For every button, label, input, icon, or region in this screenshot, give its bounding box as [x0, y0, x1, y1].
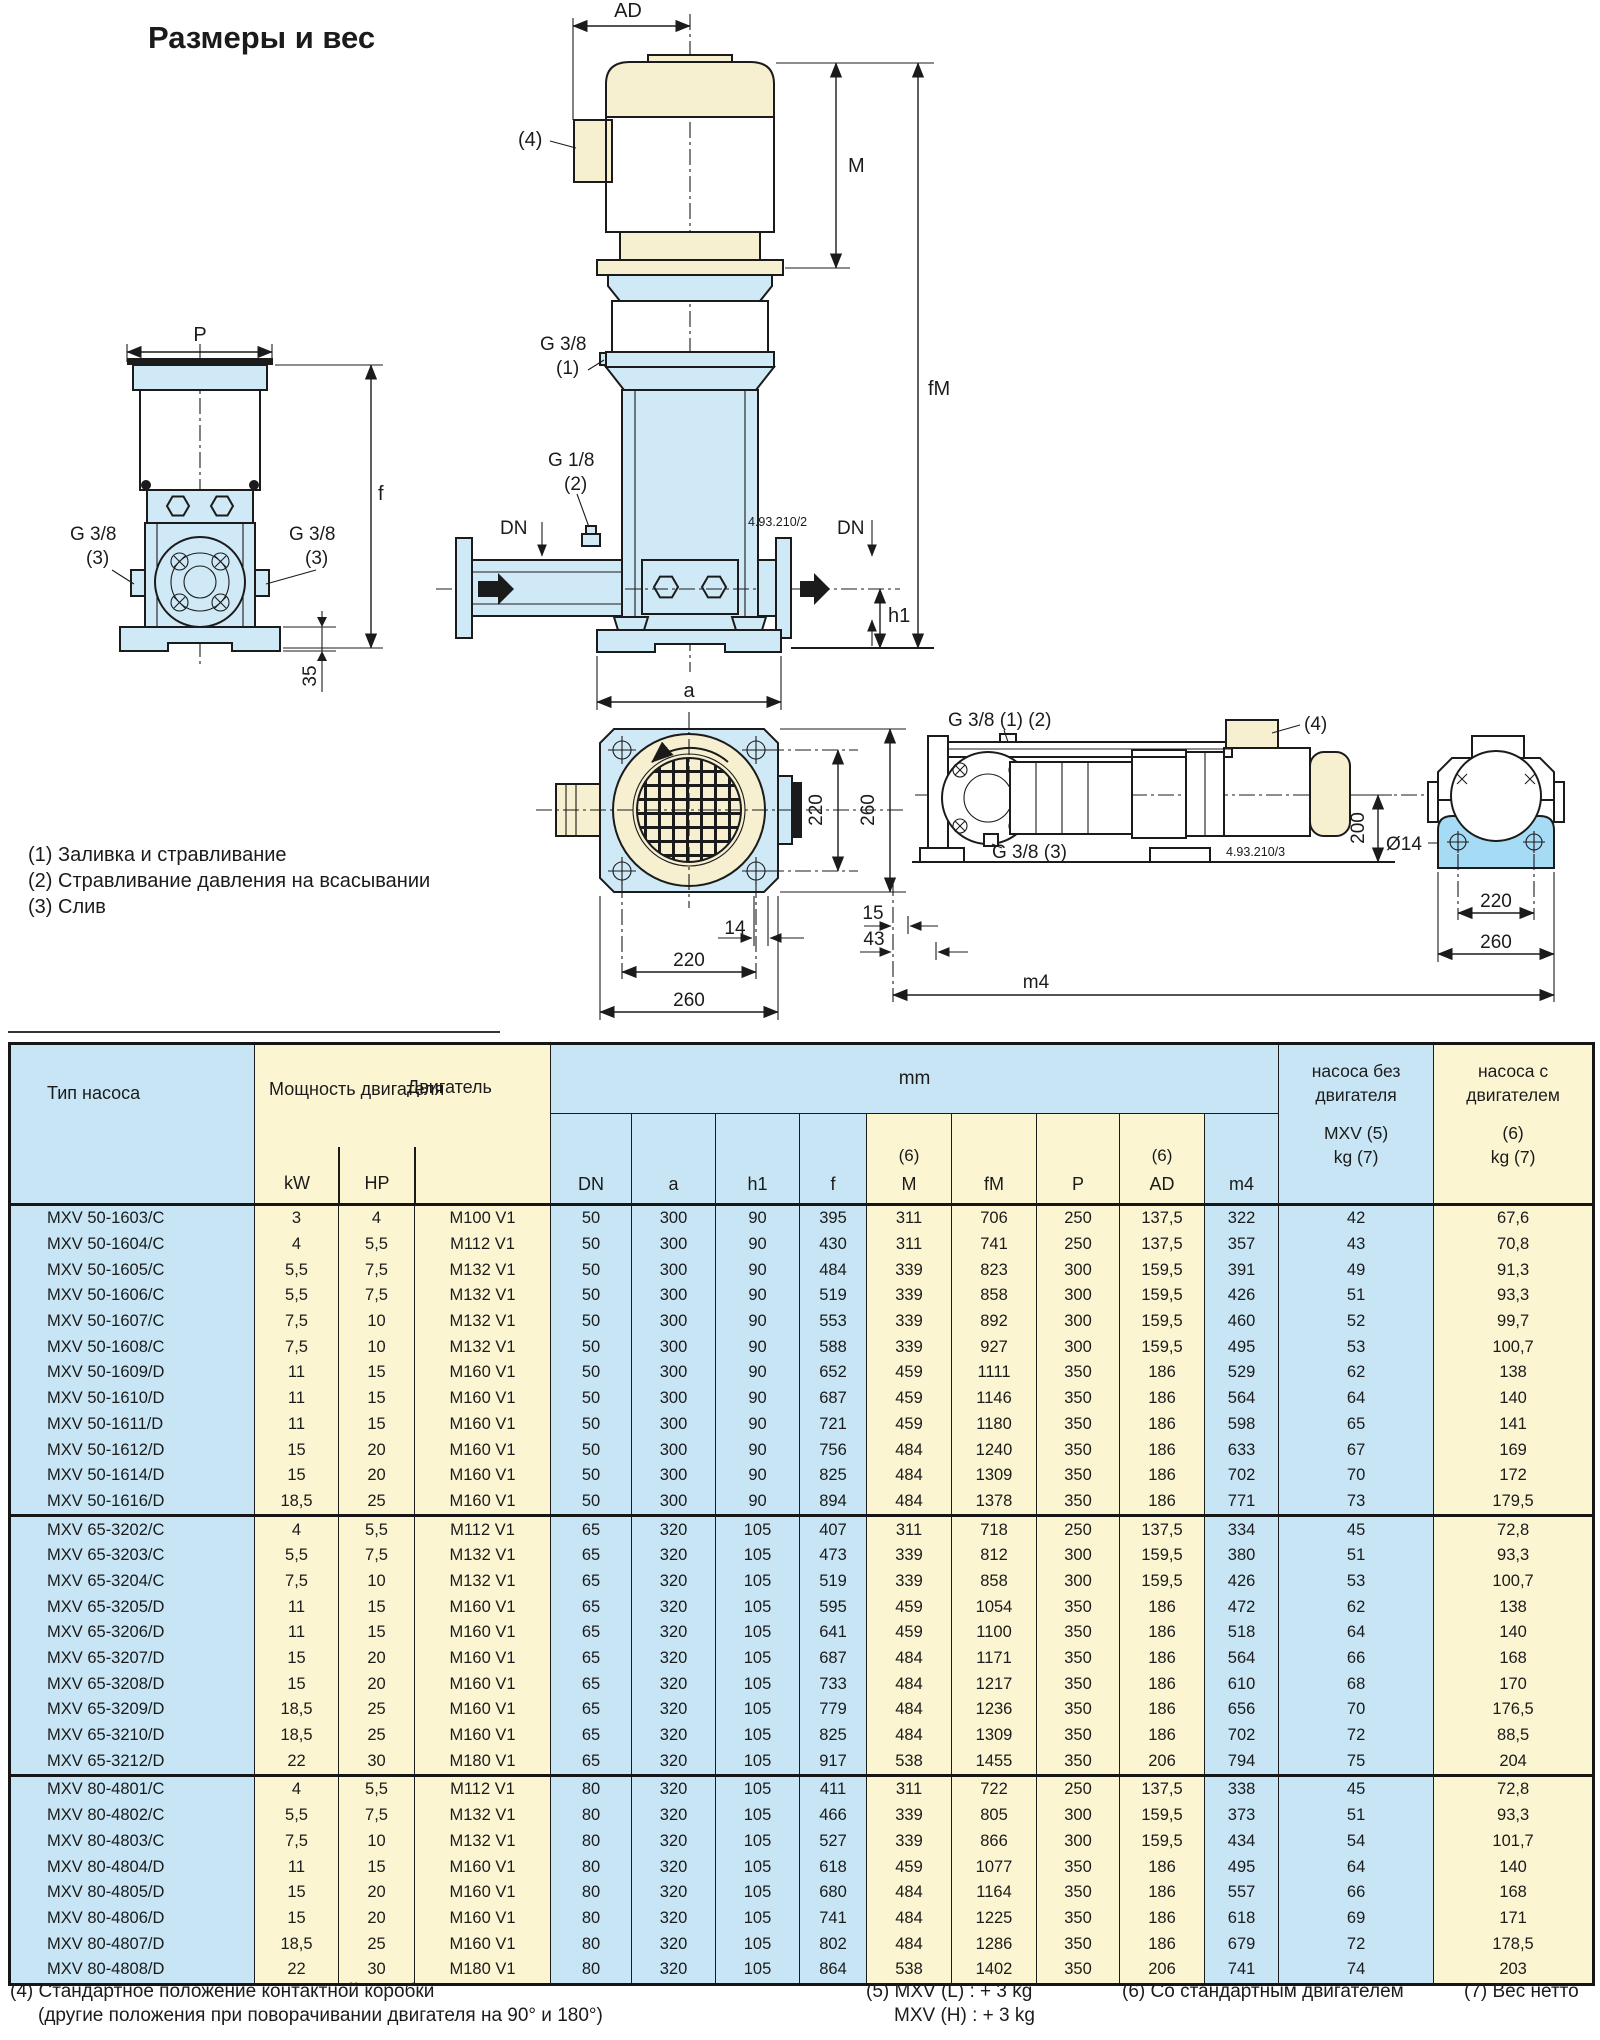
- value-cell: 186: [1120, 1437, 1205, 1463]
- value-cell: 25: [339, 1697, 415, 1723]
- value-cell: 771: [1205, 1489, 1279, 1516]
- footnote-4-line2: (другие положения при поворачивании двиг…: [10, 2004, 603, 2028]
- value-cell: 250: [1037, 1776, 1120, 1803]
- value-cell: 170: [1434, 1671, 1594, 1697]
- header-f: f: [800, 1114, 867, 1205]
- value-cell: 350: [1037, 1880, 1120, 1906]
- dim-label-220-end: 220: [1480, 891, 1512, 912]
- value-cell: 459: [867, 1360, 952, 1386]
- value-cell: 805: [952, 1803, 1037, 1829]
- horizontal-view-drawing: G 3/8 (1) (2) (4) G 3/8 (3) 4.93.210/3 2…: [860, 710, 1564, 1002]
- value-cell: 350: [1037, 1463, 1120, 1489]
- value-cell: 300: [1037, 1283, 1120, 1309]
- value-cell: 320: [632, 1776, 716, 1803]
- value-cell: 588: [800, 1334, 867, 1360]
- value-cell: 1111: [952, 1360, 1037, 1386]
- value-cell: 1309: [952, 1463, 1037, 1489]
- value-cell: 300: [632, 1386, 716, 1412]
- dim-label-43: 43: [863, 929, 884, 950]
- value-cell: 892: [952, 1309, 1037, 1335]
- value-cell: 373: [1205, 1803, 1279, 1829]
- value-cell: 186: [1120, 1386, 1205, 1412]
- value-cell: 159,5: [1120, 1283, 1205, 1309]
- value-cell: 484: [867, 1723, 952, 1749]
- dim-label-fm: fM: [928, 378, 950, 400]
- value-cell: 1171: [952, 1646, 1037, 1672]
- value-cell: 50: [551, 1309, 632, 1335]
- value-cell: 1077: [952, 1854, 1037, 1880]
- value-cell: 484: [867, 1671, 952, 1697]
- value-cell: 105: [716, 1880, 800, 1906]
- pump-type-cell: MXV 50-1605/C: [10, 1257, 255, 1283]
- value-cell: 320: [632, 1594, 716, 1620]
- table-row: MXV 50-1606/C5,57,5M132 V150300905193398…: [10, 1283, 1594, 1309]
- value-cell: 866: [952, 1829, 1037, 1855]
- value-cell: 825: [800, 1463, 867, 1489]
- value-cell: 90: [716, 1489, 800, 1516]
- value-cell: 20: [339, 1671, 415, 1697]
- table-body: MXV 50-1603/C34M100 V1503009039531170625…: [10, 1205, 1594, 1985]
- value-cell: 300: [1037, 1309, 1120, 1335]
- legend-item-3: (3) Слив: [28, 894, 430, 920]
- value-cell: 618: [800, 1854, 867, 1880]
- value-cell: 812: [952, 1543, 1037, 1569]
- value-cell: 5,5: [339, 1776, 415, 1803]
- value-cell: 320: [632, 1569, 716, 1595]
- value-cell: 90: [716, 1283, 800, 1309]
- value-cell: 320: [632, 1829, 716, 1855]
- dim-label-dn-left: DN: [500, 518, 527, 539]
- header-ad: (6) AD: [1120, 1114, 1205, 1205]
- value-cell: 80: [551, 1803, 632, 1829]
- header-weight-unit-line4: kg (7): [1435, 1145, 1591, 1169]
- value-cell: 718: [952, 1516, 1037, 1543]
- header-weight-pump-line4: kg (7): [1280, 1145, 1432, 1169]
- value-cell: 1378: [952, 1489, 1037, 1516]
- value-cell: 68: [1279, 1671, 1434, 1697]
- value-cell: 70: [1279, 1697, 1434, 1723]
- value-cell: 320: [632, 1671, 716, 1697]
- value-cell: 72: [1279, 1723, 1434, 1749]
- header-weight-pump-line3: MXV (5): [1280, 1121, 1432, 1145]
- value-cell: 186: [1120, 1906, 1205, 1932]
- value-cell: 350: [1037, 1906, 1120, 1932]
- value-cell: 553: [800, 1309, 867, 1335]
- value-cell: 357: [1205, 1232, 1279, 1258]
- value-cell: 311: [867, 1776, 952, 1803]
- dim-label-h1: h1: [888, 605, 910, 627]
- footnote-6: (6) Со стандартным двигателем: [1122, 1980, 1404, 2004]
- value-cell: 300: [632, 1334, 716, 1360]
- value-cell: 186: [1120, 1412, 1205, 1438]
- value-cell: 172: [1434, 1463, 1594, 1489]
- value-cell: 141: [1434, 1412, 1594, 1438]
- value-cell: 339: [867, 1569, 952, 1595]
- value-cell: 320: [632, 1854, 716, 1880]
- value-cell: 7,5: [339, 1257, 415, 1283]
- pump-type-cell: MXV 65-3206/D: [10, 1620, 255, 1646]
- dim-label-220-horizontal: 220: [673, 950, 705, 971]
- value-cell: 794: [1205, 1748, 1279, 1775]
- value-cell: 186: [1120, 1463, 1205, 1489]
- value-cell: 80: [551, 1880, 632, 1906]
- value-cell: 105: [716, 1803, 800, 1829]
- value-cell: 65: [551, 1748, 632, 1775]
- value-cell: 459: [867, 1620, 952, 1646]
- value-cell: 138: [1434, 1360, 1594, 1386]
- value-cell: 5,5: [339, 1232, 415, 1258]
- value-cell: 407: [800, 1516, 867, 1543]
- value-cell: 350: [1037, 1748, 1120, 1775]
- value-cell: 15: [339, 1386, 415, 1412]
- value-cell: 538: [867, 1748, 952, 1775]
- value-cell: 518: [1205, 1620, 1279, 1646]
- pump-type-cell: MXV 50-1603/C: [10, 1205, 255, 1232]
- pump-type-cell: MXV 80-4805/D: [10, 1880, 255, 1906]
- value-cell: 204: [1434, 1748, 1594, 1775]
- value-cell: 1286: [952, 1931, 1037, 1957]
- value-cell: 733: [800, 1671, 867, 1697]
- value-cell: 4: [255, 1232, 339, 1258]
- value-cell: 484: [867, 1489, 952, 1516]
- header-weight-pump-line2: двигателя: [1280, 1083, 1432, 1107]
- value-cell: 721: [800, 1412, 867, 1438]
- footnote-5: (5) MXV (L) : + 3 kg MXV (H) : + 3 kg: [866, 1980, 1035, 2028]
- table-row: MXV 65-3209/D18,525M160 V165320105779484…: [10, 1697, 1594, 1723]
- value-cell: 11: [255, 1594, 339, 1620]
- value-cell: 300: [1037, 1257, 1120, 1283]
- value-cell: 300: [632, 1489, 716, 1516]
- dim-label-35: 35: [300, 665, 321, 686]
- dim-label-m: M: [848, 155, 865, 177]
- value-cell: 88,5: [1434, 1723, 1594, 1749]
- value-cell: 320: [632, 1516, 716, 1543]
- value-cell: 100,7: [1434, 1569, 1594, 1595]
- value-cell: 5,5: [255, 1543, 339, 1569]
- value-cell: 300: [632, 1283, 716, 1309]
- value-cell: 5,5: [255, 1257, 339, 1283]
- value-cell: 50: [551, 1386, 632, 1412]
- value-cell: 1100: [952, 1620, 1037, 1646]
- value-cell: 67: [1279, 1437, 1434, 1463]
- value-cell: 339: [867, 1309, 952, 1335]
- value-cell: 80: [551, 1931, 632, 1957]
- value-cell: 641: [800, 1620, 867, 1646]
- value-cell: 65: [551, 1543, 632, 1569]
- value-cell: 93,3: [1434, 1283, 1594, 1309]
- value-cell: 311: [867, 1205, 952, 1232]
- header-motor: Двигатель: [407, 1077, 527, 1098]
- value-cell: 105: [716, 1854, 800, 1880]
- value-cell: 426: [1205, 1569, 1279, 1595]
- value-cell: 15: [255, 1671, 339, 1697]
- drain-port-left-label: G 3/8: [70, 524, 116, 545]
- value-cell: 656: [1205, 1697, 1279, 1723]
- header-weight-unit: насоса с двигателем (6) kg (7): [1434, 1044, 1594, 1205]
- value-cell: 722: [952, 1776, 1037, 1803]
- value-cell: 459: [867, 1594, 952, 1620]
- value-cell: M160 V1: [415, 1360, 551, 1386]
- dim-label-a: a: [683, 680, 695, 702]
- header-p: P: [1037, 1114, 1120, 1205]
- value-cell: 25: [339, 1489, 415, 1516]
- value-cell: 1164: [952, 1880, 1037, 1906]
- value-cell: 484: [867, 1697, 952, 1723]
- value-cell: 90: [716, 1463, 800, 1489]
- value-cell: 741: [952, 1232, 1037, 1258]
- header-weight-unit-line1: насоса с: [1435, 1059, 1591, 1083]
- value-cell: 105: [716, 1516, 800, 1543]
- pump-type-cell: MXV 50-1604/C: [10, 1232, 255, 1258]
- header-power: Мощность двигателя: [269, 1077, 389, 1102]
- value-cell: 495: [1205, 1854, 1279, 1880]
- value-cell: 25: [339, 1723, 415, 1749]
- value-cell: 350: [1037, 1360, 1120, 1386]
- value-cell: M160 V1: [415, 1463, 551, 1489]
- value-cell: 159,5: [1120, 1829, 1205, 1855]
- table-row: MXV 80-4806/D1520M160 V18032010574148412…: [10, 1906, 1594, 1932]
- value-cell: 186: [1120, 1489, 1205, 1516]
- table-row: MXV 65-3207/D1520M160 V16532010568748411…: [10, 1646, 1594, 1672]
- value-cell: 90: [716, 1386, 800, 1412]
- value-cell: 93,3: [1434, 1543, 1594, 1569]
- value-cell: 350: [1037, 1931, 1120, 1957]
- dim-label-m4: m4: [1023, 972, 1050, 993]
- value-cell: 5,5: [255, 1803, 339, 1829]
- value-cell: 186: [1120, 1931, 1205, 1957]
- value-cell: M132 V1: [415, 1283, 551, 1309]
- value-cell: 186: [1120, 1594, 1205, 1620]
- table-row: MXV 50-1603/C34M100 V1503009039531170625…: [10, 1205, 1594, 1232]
- value-cell: 72: [1279, 1931, 1434, 1957]
- value-cell: 823: [952, 1257, 1037, 1283]
- value-cell: 52: [1279, 1309, 1434, 1335]
- table-row: MXV 65-3203/C5,57,5M132 V165320105473339…: [10, 1543, 1594, 1569]
- value-cell: 66: [1279, 1880, 1434, 1906]
- dim-label-260-horizontal: 260: [673, 990, 705, 1011]
- value-cell: 322: [1205, 1205, 1279, 1232]
- value-cell: 90: [716, 1412, 800, 1438]
- value-cell: 45: [1279, 1776, 1434, 1803]
- value-cell: 168: [1434, 1646, 1594, 1672]
- value-cell: 22: [255, 1748, 339, 1775]
- value-cell: 1309: [952, 1723, 1037, 1749]
- drain-port-label-horizontal: G 3/8 (3): [992, 842, 1067, 863]
- value-cell: 320: [632, 1906, 716, 1932]
- value-cell: 50: [551, 1463, 632, 1489]
- value-cell: M160 V1: [415, 1620, 551, 1646]
- value-cell: 105: [716, 1671, 800, 1697]
- value-cell: 179,5: [1434, 1489, 1594, 1516]
- fill-port-label: G 3/8: [540, 334, 586, 355]
- value-cell: 430: [800, 1232, 867, 1258]
- value-cell: 460: [1205, 1309, 1279, 1335]
- value-cell: 73: [1279, 1489, 1434, 1516]
- value-cell: 11: [255, 1360, 339, 1386]
- table-row: MXV 65-3205/D1115M160 V16532010559545910…: [10, 1594, 1594, 1620]
- value-cell: M160 V1: [415, 1931, 551, 1957]
- value-cell: 65: [551, 1569, 632, 1595]
- value-cell: 250: [1037, 1232, 1120, 1258]
- value-cell: 484: [800, 1257, 867, 1283]
- header-a: a: [632, 1114, 716, 1205]
- header-kw: kW: [255, 1173, 339, 1194]
- value-cell: 779: [800, 1697, 867, 1723]
- pump-type-cell: MXV 65-3204/C: [10, 1569, 255, 1595]
- drain-port-right-label: G 3/8: [289, 524, 335, 545]
- value-cell: 50: [551, 1205, 632, 1232]
- top-view-drawing: 220 260 14 220 260: [536, 712, 906, 1020]
- pump-type-cell: MXV 50-1616/D: [10, 1489, 255, 1516]
- value-cell: 80: [551, 1906, 632, 1932]
- value-cell: 917: [800, 1748, 867, 1775]
- value-cell: 11: [255, 1620, 339, 1646]
- pump-type-cell: MXV 80-4807/D: [10, 1931, 255, 1957]
- dim-label-14: 14: [724, 918, 746, 939]
- header-dn: DN: [551, 1114, 632, 1205]
- value-cell: 15: [255, 1880, 339, 1906]
- value-cell: 176,5: [1434, 1697, 1594, 1723]
- value-cell: 43: [1279, 1232, 1434, 1258]
- value-cell: 339: [867, 1334, 952, 1360]
- value-cell: 484: [867, 1906, 952, 1932]
- value-cell: 18,5: [255, 1931, 339, 1957]
- value-cell: 858: [952, 1569, 1037, 1595]
- value-cell: 564: [1205, 1646, 1279, 1672]
- value-cell: M160 V1: [415, 1489, 551, 1516]
- header-h1: h1: [716, 1114, 800, 1205]
- table-row: MXV 65-3210/D18,525M160 V165320105825484…: [10, 1723, 1594, 1749]
- pump-type-cell: MXV 65-3202/C: [10, 1516, 255, 1543]
- pump-type-cell: MXV 80-4804/D: [10, 1854, 255, 1880]
- header-m4: m4: [1205, 1114, 1279, 1205]
- header-mm: mm: [551, 1044, 1279, 1114]
- value-cell: 3: [255, 1205, 339, 1232]
- value-cell: 350: [1037, 1671, 1120, 1697]
- value-cell: 72,8: [1434, 1516, 1594, 1543]
- value-cell: 598: [1205, 1412, 1279, 1438]
- value-cell: 105: [716, 1931, 800, 1957]
- value-cell: 339: [867, 1803, 952, 1829]
- dim-label-15: 15: [862, 903, 883, 924]
- value-cell: 858: [952, 1283, 1037, 1309]
- value-cell: 20: [339, 1463, 415, 1489]
- value-cell: 756: [800, 1437, 867, 1463]
- value-cell: 300: [632, 1463, 716, 1489]
- value-cell: 70,8: [1434, 1232, 1594, 1258]
- value-cell: 300: [1037, 1569, 1120, 1595]
- pump-type-cell: MXV 65-3210/D: [10, 1723, 255, 1749]
- legend-item-1: (1) Заливка и стравливание: [28, 842, 430, 868]
- header-m: (6) M: [867, 1114, 952, 1205]
- value-cell: 320: [632, 1646, 716, 1672]
- value-cell: 320: [632, 1543, 716, 1569]
- pump-type-cell: MXV 50-1614/D: [10, 1463, 255, 1489]
- value-cell: 1225: [952, 1906, 1037, 1932]
- value-cell: 20: [339, 1880, 415, 1906]
- value-cell: 15: [339, 1620, 415, 1646]
- terminal-box-ref-horizontal: (4): [1304, 714, 1327, 735]
- pump-type-cell: MXV 65-3203/C: [10, 1543, 255, 1569]
- value-cell: 10: [339, 1829, 415, 1855]
- value-cell: 186: [1120, 1697, 1205, 1723]
- value-cell: 519: [800, 1569, 867, 1595]
- value-cell: 65: [551, 1671, 632, 1697]
- pump-type-cell: MXV 65-3207/D: [10, 1646, 255, 1672]
- value-cell: 65: [551, 1723, 632, 1749]
- value-cell: M132 V1: [415, 1543, 551, 1569]
- value-cell: 350: [1037, 1594, 1120, 1620]
- value-cell: M132 V1: [415, 1803, 551, 1829]
- value-cell: 20: [339, 1906, 415, 1932]
- value-cell: 178,5: [1434, 1931, 1594, 1957]
- vent-port-label: G 1/8: [548, 450, 594, 471]
- dim-label-dn-right: DN: [837, 518, 864, 539]
- value-cell: 45: [1279, 1516, 1434, 1543]
- header-weight-pump: насоса без двигателя MXV (5) kg (7): [1279, 1044, 1434, 1205]
- value-cell: 105: [716, 1829, 800, 1855]
- footnote-7: (7) Вес нетто: [1464, 1980, 1579, 2004]
- value-cell: 105: [716, 1543, 800, 1569]
- value-cell: 320: [632, 1957, 716, 1984]
- value-cell: 15: [255, 1437, 339, 1463]
- value-cell: 484: [867, 1646, 952, 1672]
- header-fm: fM: [952, 1114, 1037, 1205]
- value-cell: 186: [1120, 1360, 1205, 1386]
- value-cell: 618: [1205, 1906, 1279, 1932]
- value-cell: 1240: [952, 1437, 1037, 1463]
- value-cell: 484: [867, 1931, 952, 1957]
- value-cell: 64: [1279, 1620, 1434, 1646]
- pump-type-cell: MXV 65-3212/D: [10, 1748, 255, 1775]
- table-row: MXV 80-4802/C5,57,5M132 V180320105466339…: [10, 1803, 1594, 1829]
- value-cell: 138: [1434, 1594, 1594, 1620]
- value-cell: 50: [551, 1232, 632, 1258]
- value-cell: 50: [551, 1412, 632, 1438]
- value-cell: M160 V1: [415, 1437, 551, 1463]
- value-cell: 65: [551, 1516, 632, 1543]
- value-cell: 395: [800, 1205, 867, 1232]
- value-cell: M160 V1: [415, 1671, 551, 1697]
- value-cell: 687: [800, 1646, 867, 1672]
- fill-port-ref: (1): [556, 358, 579, 379]
- value-cell: 473: [800, 1543, 867, 1569]
- value-cell: 169: [1434, 1437, 1594, 1463]
- value-cell: M132 V1: [415, 1569, 551, 1595]
- footnote-4-line1: (4) Стандартное положение контактной кор…: [10, 1980, 603, 2004]
- value-cell: 300: [1037, 1334, 1120, 1360]
- header-weight-unit-line3: (6): [1435, 1121, 1591, 1145]
- value-cell: M160 V1: [415, 1386, 551, 1412]
- value-cell: 90: [716, 1205, 800, 1232]
- value-cell: 300: [632, 1205, 716, 1232]
- legend-item-2: (2) Стравливание давления на всасывании: [28, 868, 430, 894]
- value-cell: 300: [1037, 1803, 1120, 1829]
- value-cell: 7,5: [255, 1309, 339, 1335]
- value-cell: M160 V1: [415, 1723, 551, 1749]
- value-cell: 50: [551, 1257, 632, 1283]
- value-cell: 65: [1279, 1412, 1434, 1438]
- value-cell: 30: [339, 1748, 415, 1775]
- header-power-motor-block: Мощность двигателя Двигатель kW HP: [255, 1044, 551, 1205]
- value-cell: M132 V1: [415, 1334, 551, 1360]
- value-cell: 50: [551, 1283, 632, 1309]
- value-cell: 15: [339, 1854, 415, 1880]
- table-row: MXV 65-3212/D2230M180 V16532010591753814…: [10, 1748, 1594, 1775]
- value-cell: 7,5: [255, 1829, 339, 1855]
- value-cell: 350: [1037, 1697, 1120, 1723]
- value-cell: 105: [716, 1748, 800, 1775]
